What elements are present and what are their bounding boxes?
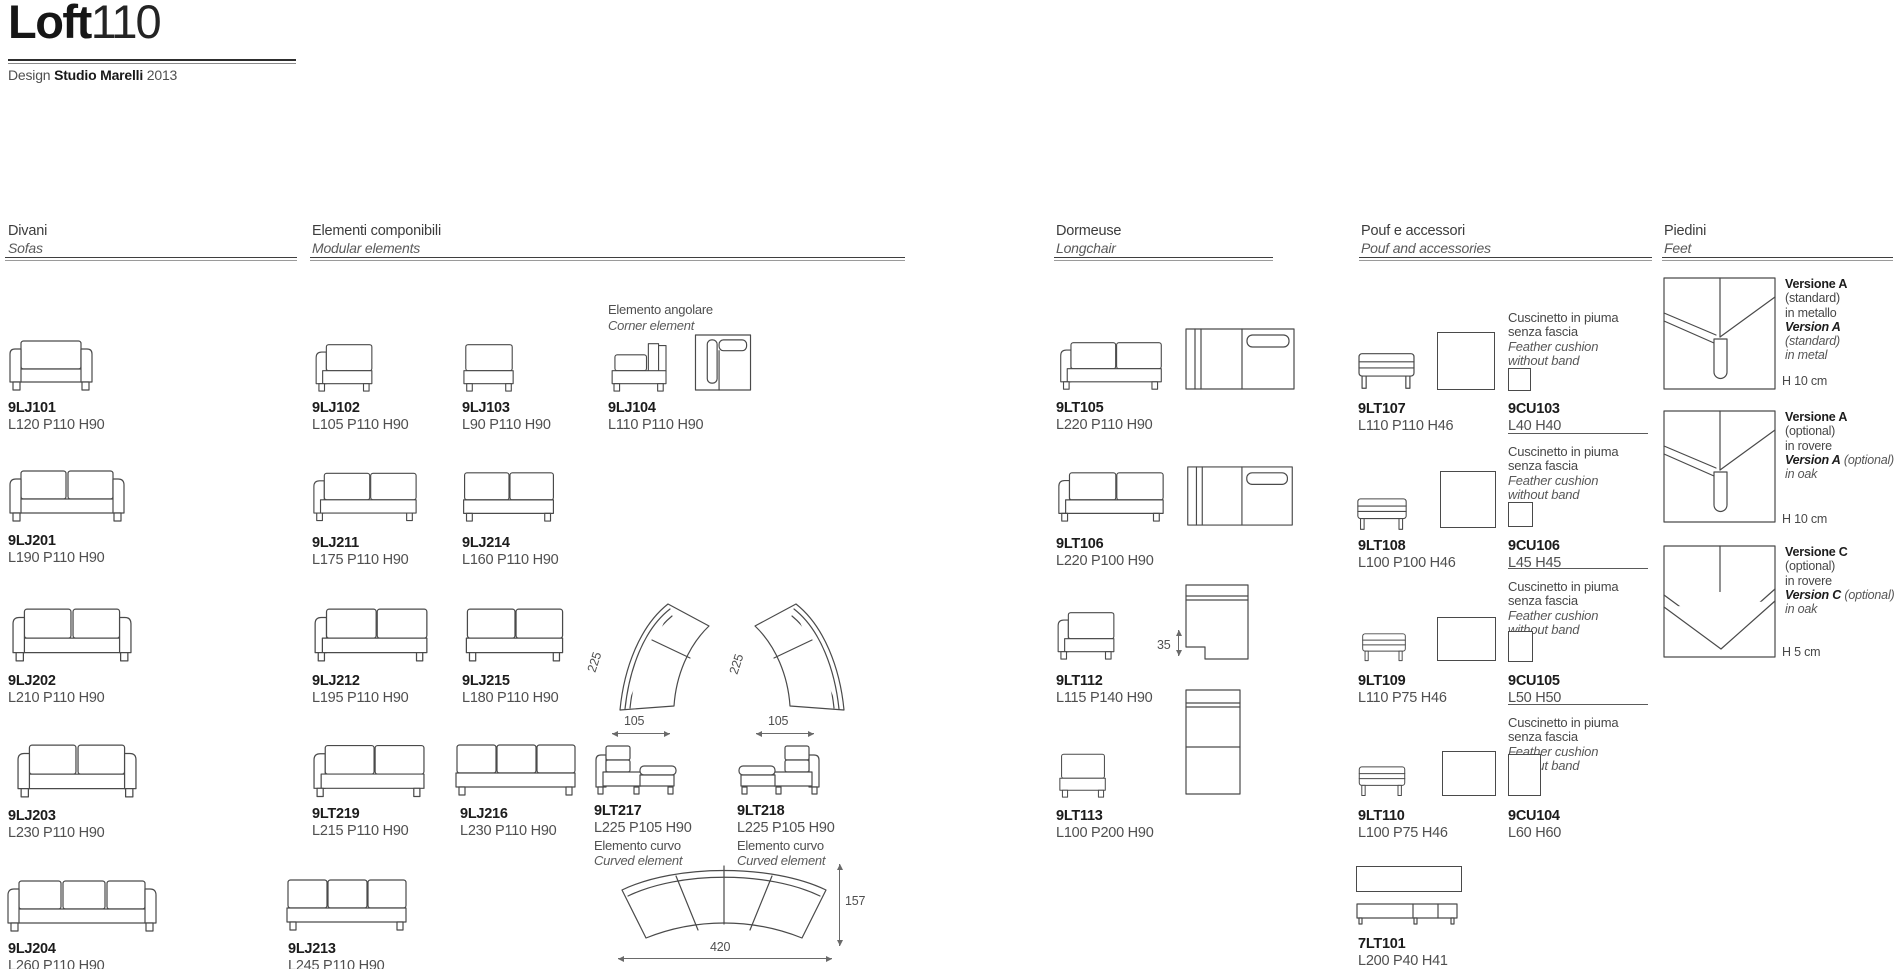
- product-code: 9LJ215: [462, 673, 558, 690]
- foot-height-label: H 10 cm: [1782, 374, 1827, 388]
- cushion-note-it1: Cuscinetto in piuma: [1508, 445, 1618, 459]
- catalog-sheet: Loft110 Design Studio Marelli 2013 Divan…: [0, 0, 1895, 969]
- product-note-it: Elemento curvo: [737, 838, 835, 854]
- sofa-front-drawing: [8, 466, 126, 524]
- product-note-it: Elemento curvo: [594, 838, 692, 854]
- corner-element-note: Elemento angolare Corner element: [608, 302, 713, 333]
- foot-name-en: Version A (standard): [1785, 320, 1895, 349]
- product-code: 9LT107: [1358, 401, 1453, 418]
- cushion-note-it1: Cuscinetto in piuma: [1508, 580, 1618, 594]
- sofa-front-drawing: [8, 604, 136, 664]
- product-label: 9LJ211 L175 P110 H90: [312, 535, 408, 570]
- product-code: 9LJ202: [8, 673, 104, 690]
- module-front-drawing: [312, 604, 430, 664]
- product-dims: L110 P75 H46: [1358, 690, 1447, 707]
- credit-year: 2013: [143, 67, 177, 83]
- product-label: 9LJ103 L90 P110 H90: [462, 400, 551, 435]
- dim-label: 35: [1157, 638, 1171, 652]
- product-code: 9LT105: [1056, 400, 1152, 417]
- module-front-drawing: [312, 340, 376, 392]
- product-label: 9LJ212 L195 P110 H90: [312, 673, 408, 708]
- foot-name-en-bold: Version A: [1785, 320, 1841, 334]
- product-code: 9LJ211: [312, 535, 408, 552]
- product-dims: L210 P110 H90: [8, 690, 104, 707]
- module-front-drawing: [312, 468, 418, 524]
- product-dims: L115 P140 H90: [1056, 690, 1152, 707]
- curved-module-side-drawing: [594, 744, 678, 798]
- section-rule: [1359, 257, 1652, 261]
- product-dims: L260 P110 H90: [8, 958, 104, 969]
- cushion-top-drawing: [1508, 631, 1533, 662]
- module-front-drawing: [455, 740, 577, 800]
- foot-name-it-bold: Versione A: [1785, 410, 1847, 424]
- cushion-note: Cuscinetto in piuma senza fascia Feather…: [1508, 311, 1618, 368]
- section-rule: [1054, 257, 1273, 261]
- dim-width-label: 105: [624, 714, 644, 728]
- dim-line: [1178, 630, 1179, 656]
- module-front-drawing: [462, 340, 516, 392]
- curved-element-top-drawing: [612, 596, 712, 714]
- product-dims: L105 P110 H90: [312, 417, 408, 434]
- foot-drawing-version-a-metal: [1663, 277, 1776, 390]
- foot-material-en: in metal: [1785, 348, 1895, 362]
- product-dims: L225 P105 H90: [737, 820, 835, 837]
- curved-element-top-drawing: [752, 596, 852, 714]
- curved-module-side-drawing: [737, 744, 821, 798]
- product-dims: L230 P110 H90: [8, 825, 104, 842]
- cushion-note: Cuscinetto in piuma senza fascia Feather…: [1508, 580, 1618, 637]
- foot-drawing-version-a-oak: [1663, 410, 1776, 523]
- product-label: 9LT219 L215 P110 H90: [312, 806, 408, 841]
- foot-name-it: Versione A (optional): [1785, 410, 1895, 439]
- product-dims: L180 P110 H90: [462, 690, 558, 707]
- cushion-label: 9CU103 L40 H40: [1508, 401, 1561, 436]
- foot-version-text: Versione A (standard) in metallo Version…: [1785, 277, 1895, 363]
- section-rule: [5, 257, 297, 261]
- dim-width-line: [756, 733, 814, 734]
- foot-material-en: in oak: [1785, 467, 1895, 481]
- dormeuse-front-drawing: [1055, 750, 1111, 798]
- product-label: 7LT101 L200 P40 H41: [1358, 936, 1448, 969]
- foot-name-en-bold: Version C: [1785, 588, 1841, 602]
- cushion-dims: L50 H50: [1508, 690, 1561, 707]
- product-dims: L200 P40 H41: [1358, 953, 1448, 969]
- product-code: 9LJ213: [288, 941, 384, 958]
- product-label: 9LJ216 L230 P110 H90: [460, 806, 556, 841]
- cushion-note-it1: Cuscinetto in piuma: [1508, 716, 1618, 730]
- product-dims: L190 P110 H90: [8, 550, 104, 567]
- product-label: 9LT110 L100 P75 H46: [1358, 808, 1448, 843]
- cushion-note-en1: Feather cushion: [1508, 340, 1618, 354]
- pouf-top-drawing: [1440, 471, 1496, 528]
- cushion-note-it2: senza fascia: [1508, 730, 1618, 744]
- pouf-top-drawing: [1437, 617, 1496, 661]
- dim-arc-label: 225: [585, 650, 605, 674]
- product-code: 9LJ216: [460, 806, 556, 823]
- product-code: 9LT110: [1358, 808, 1448, 825]
- product-code: 9LJ212: [312, 673, 408, 690]
- product-dims: L245 P110 H90: [288, 958, 384, 969]
- corner-top-drawing: [693, 334, 753, 391]
- cushion-top-drawing: [1508, 754, 1541, 796]
- foot-name-en-bold: Version A: [1785, 453, 1841, 467]
- product-code: 9LT108: [1358, 538, 1456, 555]
- product-label: 9LJ104 L110 P110 H90: [608, 400, 703, 435]
- product-label: 9LT106 L220 P100 H90: [1056, 536, 1154, 571]
- foot-material-it: in rovere: [1785, 439, 1895, 453]
- foot-drawing-version-c-oak: [1663, 545, 1776, 658]
- pouf-side-drawing: [1353, 498, 1411, 532]
- product-dims: L225 P105 H90: [594, 820, 692, 837]
- foot-material-it: in metallo: [1785, 306, 1895, 320]
- product-code: 9LJ201: [8, 533, 104, 550]
- pouf-side-drawing: [1355, 633, 1413, 663]
- foot-qual-it: (optional): [1785, 424, 1835, 438]
- product-label: 9LJ214 L160 P110 H90: [462, 535, 558, 570]
- section-title-en: Pouf and accessories: [1361, 240, 1491, 256]
- product-code: 9LJ101: [8, 400, 104, 417]
- cushion-note-en1: Feather cushion: [1508, 474, 1618, 488]
- credit-prefix: Design: [8, 67, 54, 83]
- product-label: 9LJ213 L245 P110 H90: [288, 941, 384, 969]
- product-code: 9LJ102: [312, 400, 408, 417]
- section-header-divani: Divani Sofas: [8, 223, 47, 256]
- bench-front-drawing: [1356, 903, 1458, 927]
- cushion-note-en2: without band: [1508, 488, 1618, 502]
- module-front-drawing: [462, 604, 568, 664]
- section-title-en: Longchair: [1056, 240, 1121, 256]
- foot-version-text: Versione C (optional) in rovere Version …: [1785, 545, 1895, 616]
- foot-material-en: in oak: [1785, 602, 1895, 616]
- pouf-top-drawing: [1442, 751, 1496, 796]
- foot-name-it-bold: Versione A: [1785, 277, 1847, 291]
- foot-qual-en: (optional): [1841, 453, 1894, 467]
- product-label: 9LT112 L115 P140 H90: [1056, 673, 1152, 708]
- dim-height-label: 157: [845, 894, 865, 908]
- foot-height-label: H 5 cm: [1782, 645, 1820, 659]
- product-code: 9LJ104: [608, 400, 703, 417]
- dim-height-line: [839, 864, 840, 946]
- product-dims: L90 P110 H90: [462, 417, 551, 434]
- sofa-front-drawing: [6, 876, 158, 936]
- foot-height-label: H 10 cm: [1782, 512, 1827, 526]
- module-front-drawing: [286, 874, 408, 936]
- product-label: 9LJ203 L230 P110 H90: [8, 808, 104, 843]
- dim-width-label: 420: [710, 940, 730, 954]
- product-code: 9LT109: [1358, 673, 1447, 690]
- section-title-it: Elementi componibili: [312, 223, 441, 240]
- foot-qual-en: (optional): [1841, 588, 1894, 602]
- section-title-en: Feet: [1664, 240, 1706, 256]
- product-label: 9LJ202 L210 P110 H90: [8, 673, 104, 708]
- product-dims: L100 P100 H46: [1358, 555, 1456, 572]
- dormeuse-front-drawing: [1055, 468, 1167, 524]
- section-title-it: Piedini: [1664, 223, 1706, 240]
- foot-name-en: Version A (optional): [1785, 453, 1895, 467]
- section-title-en: Sofas: [8, 240, 47, 256]
- dormeuse-top-drawing: [1185, 584, 1249, 660]
- module-front-drawing: [462, 468, 556, 524]
- cushion-note: Cuscinetto in piuma senza fascia Feather…: [1508, 445, 1618, 502]
- product-dims: L175 P110 H90: [312, 552, 408, 569]
- product-dims: L195 P110 H90: [312, 690, 408, 707]
- cushion-dims: L60 H60: [1508, 825, 1561, 842]
- product-dims: L230 P110 H90: [460, 823, 556, 840]
- page-title-light: 110: [91, 0, 160, 48]
- corner-front-drawing: [608, 340, 672, 392]
- product-dims: L100 P200 H90: [1056, 825, 1154, 842]
- product-dims: L100 P75 H46: [1358, 825, 1448, 842]
- product-code: 9LT113: [1056, 808, 1154, 825]
- product-dims: L220 P110 H90: [1056, 417, 1152, 434]
- module-front-drawing: [312, 740, 426, 800]
- section-title-it: Divani: [8, 223, 47, 240]
- pouf-side-drawing: [1355, 766, 1409, 798]
- foot-version-text: Versione A (optional) in rovere Version …: [1785, 410, 1895, 481]
- cushion-code: 9CU103: [1508, 401, 1561, 418]
- section-header-dormeuse: Dormeuse Longchair: [1056, 223, 1121, 256]
- sofa-front-drawing: [8, 336, 94, 392]
- corner-note-en: Corner element: [608, 318, 713, 334]
- cushion-note-en1: Feather cushion: [1508, 609, 1618, 623]
- cushion-code: 9CU105: [1508, 673, 1561, 690]
- foot-qual-it: (standard): [1785, 291, 1840, 305]
- cushion-top-drawing: [1508, 502, 1533, 527]
- product-code: 9LJ203: [8, 808, 104, 825]
- design-credit: Design Studio Marelli 2013: [8, 67, 177, 83]
- curved-composition-top-drawing: [616, 860, 832, 944]
- product-label: 9LJ102 L105 P110 H90: [312, 400, 408, 435]
- product-code: 9LJ204: [8, 941, 104, 958]
- page-title-bold: Loft: [8, 0, 91, 48]
- dormeuse-top-drawing: [1185, 466, 1295, 526]
- foot-name-it: Versione A (standard): [1785, 277, 1895, 306]
- page-title: Loft110: [8, 0, 160, 49]
- dim-width-line: [618, 958, 832, 959]
- dim-arc-label: 225: [727, 652, 747, 676]
- pouf-side-drawing: [1358, 352, 1415, 392]
- product-dims: L110 P110 H46: [1358, 418, 1453, 435]
- product-dims: L220 P100 H90: [1056, 553, 1154, 570]
- cushion-top-drawing: [1508, 368, 1531, 391]
- product-label: 9LT105 L220 P110 H90: [1056, 400, 1152, 435]
- foot-material-it: in rovere: [1785, 574, 1895, 588]
- product-code: 9LT219: [312, 806, 408, 823]
- product-label: 9LT113 L100 P200 H90: [1056, 808, 1154, 843]
- section-header-pouf: Pouf e accessori Pouf and accessories: [1361, 223, 1491, 256]
- product-label: 9LJ201 L190 P110 H90: [8, 533, 104, 568]
- foot-name-it: Versione C (optional): [1785, 545, 1895, 574]
- product-label: 9LJ204 L260 P110 H90: [8, 941, 104, 969]
- product-label: 9LT108 L100 P100 H46: [1358, 538, 1456, 573]
- section-title-it: Pouf e accessori: [1361, 223, 1491, 240]
- foot-name-en: Version C (optional): [1785, 588, 1895, 602]
- section-title-it: Dormeuse: [1056, 223, 1121, 240]
- cushion-code: 9CU104: [1508, 808, 1561, 825]
- product-code: 9LT106: [1056, 536, 1154, 553]
- section-title-en: Modular elements: [312, 240, 441, 256]
- product-label: 9LT109 L110 P75 H46: [1358, 673, 1447, 708]
- cushion-label: 9CU105 L50 H50: [1508, 673, 1561, 708]
- corner-note-it: Elemento angolare: [608, 302, 713, 318]
- dim-width-label: 105: [768, 714, 788, 728]
- product-dims: L160 P110 H90: [462, 552, 558, 569]
- sofa-front-drawing: [8, 740, 146, 800]
- cushion-note-it2: senza fascia: [1508, 325, 1618, 339]
- product-dims: L110 P110 H90: [608, 417, 703, 434]
- cushion-note-it1: Cuscinetto in piuma: [1508, 311, 1618, 325]
- cushion-dims: L45 H45: [1508, 555, 1561, 572]
- credit-studio: Studio Marelli: [54, 67, 143, 83]
- product-code: 9LT218: [737, 803, 835, 820]
- product-label: 9LJ215 L180 P110 H90: [462, 673, 558, 708]
- product-label: 9LT107 L110 P110 H46: [1358, 401, 1453, 436]
- cushion-label: 9CU104 L60 H60: [1508, 808, 1561, 843]
- pouf-top-drawing: [1437, 332, 1495, 390]
- product-dims: L215 P110 H90: [312, 823, 408, 840]
- foot-qual-it: (optional): [1785, 559, 1835, 573]
- cushion-note-it2: senza fascia: [1508, 459, 1618, 473]
- separator-line: [1508, 704, 1648, 705]
- product-label: 9LJ101 L120 P110 H90: [8, 400, 104, 435]
- bench-top-drawing: [1356, 866, 1462, 892]
- cushion-note-en2: without band: [1508, 354, 1618, 368]
- foot-name-it-bold: Versione C: [1785, 545, 1848, 559]
- dormeuse-top-drawing: [1185, 328, 1295, 390]
- product-code: 7LT101: [1358, 936, 1448, 953]
- title-rule: [8, 59, 296, 64]
- product-code: 9LT217: [594, 803, 692, 820]
- product-code: 9LT112: [1056, 673, 1152, 690]
- separator-line: [1508, 433, 1648, 434]
- section-header-piedini: Piedini Feet: [1664, 223, 1706, 256]
- section-rule: [1662, 257, 1893, 261]
- product-code: 9LJ214: [462, 535, 558, 552]
- dim-width-line: [612, 733, 670, 734]
- section-header-componibili: Elementi componibili Modular elements: [312, 223, 441, 256]
- section-rule: [310, 257, 905, 261]
- dormeuse-front-drawing: [1055, 608, 1117, 660]
- cushion-code: 9CU106: [1508, 538, 1561, 555]
- product-dims: L120 P110 H90: [8, 417, 104, 434]
- cushion-note-it2: senza fascia: [1508, 594, 1618, 608]
- product-code: 9LJ103: [462, 400, 551, 417]
- separator-line: [1508, 568, 1648, 569]
- foot-qual-en: (standard): [1785, 334, 1840, 348]
- dormeuse-front-drawing: [1055, 338, 1167, 392]
- dormeuse-top-drawing: [1185, 688, 1241, 796]
